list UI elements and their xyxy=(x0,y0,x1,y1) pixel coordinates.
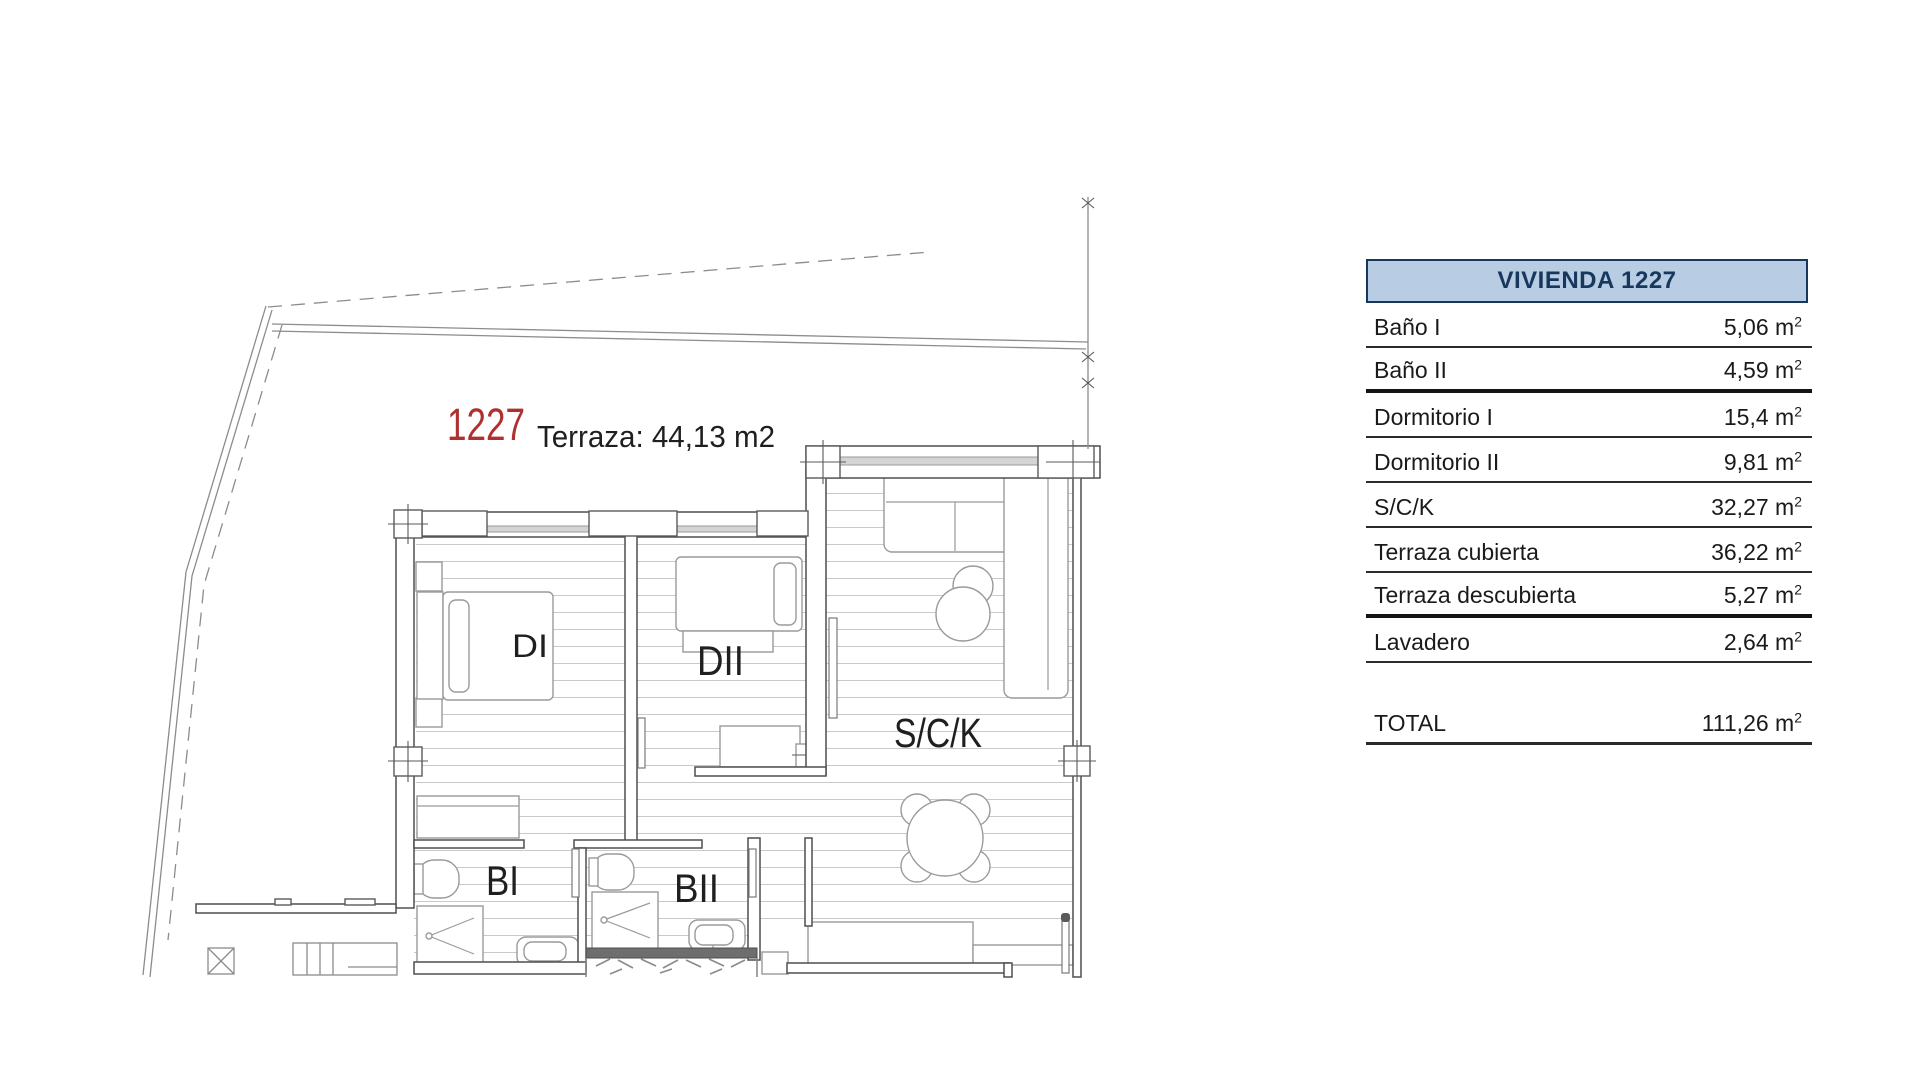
room-area-value: 5,27 m2 xyxy=(1724,582,1802,609)
area-table-row: Baño II4,59 m2 xyxy=(1366,348,1812,393)
table-rows: Baño I5,06 m2Baño II4,59 m2Dormitorio I1… xyxy=(1366,303,1812,663)
square-sup: 2 xyxy=(1794,448,1802,464)
square-sup: 2 xyxy=(1794,403,1802,419)
room-name: Dormitorio I xyxy=(1374,404,1493,431)
area-table-row: Dormitorio II9,81 m2 xyxy=(1366,438,1812,483)
square-sup: 2 xyxy=(1794,356,1802,372)
room-label-di: DI xyxy=(512,628,548,664)
room-name: Terraza descubierta xyxy=(1374,582,1576,609)
square-sup: 2 xyxy=(1794,493,1802,509)
total-value: 111,26 m2 xyxy=(1702,710,1802,737)
room-name: Baño II xyxy=(1374,357,1447,384)
table-title: VIVIENDA 1227 xyxy=(1497,267,1676,295)
room-area-value: 4,59 m2 xyxy=(1724,357,1802,384)
room-name: S/C/K xyxy=(1374,494,1434,521)
area-table-row: Dormitorio I15,4 m2 xyxy=(1366,393,1812,438)
room-area-value: 32,27 m2 xyxy=(1711,494,1802,521)
square-sup: 2 xyxy=(1794,581,1802,597)
room-label-dii: DII xyxy=(697,637,744,684)
area-table-row: Terraza cubierta36,22 m2 xyxy=(1366,528,1812,573)
unit-number-label: 1227 xyxy=(447,399,525,450)
room-label-bi: BI xyxy=(486,857,519,904)
area-table-row: S/C/K32,27 m2 xyxy=(1366,483,1812,528)
table-header: VIVIENDA 1227 xyxy=(1366,259,1808,303)
room-label-bii: BII xyxy=(674,867,719,911)
room-area-value: 15,4 m2 xyxy=(1724,404,1802,431)
room-area-value: 36,22 m2 xyxy=(1711,539,1802,566)
dining-table-set xyxy=(901,794,990,882)
area-table-row: Terraza descubierta5,27 m2 xyxy=(1366,573,1812,618)
area-table: VIVIENDA 1227 Baño I5,06 m2Baño II4,59 m… xyxy=(1366,259,1812,745)
table-total-row: TOTAL 111,26 m2 xyxy=(1366,699,1812,745)
outdoor-steps xyxy=(208,943,397,975)
total-label: TOTAL xyxy=(1374,710,1446,737)
room-name: Baño I xyxy=(1374,314,1441,341)
area-table-row: Baño I5,06 m2 xyxy=(1366,303,1812,348)
room-area-value: 9,81 m2 xyxy=(1724,449,1802,476)
square-sup: 2 xyxy=(1794,538,1802,554)
square-sup: 2 xyxy=(1794,709,1802,725)
room-name: Terraza cubierta xyxy=(1374,539,1539,566)
area-table-row: Lavadero2,64 m2 xyxy=(1366,618,1812,663)
room-label-sck: S/C/K xyxy=(894,710,982,756)
square-sup: 2 xyxy=(1794,628,1802,644)
room-area-value: 5,06 m2 xyxy=(1724,314,1802,341)
square-sup: 2 xyxy=(1794,313,1802,329)
room-name: Dormitorio II xyxy=(1374,449,1499,476)
room-area-value: 2,64 m2 xyxy=(1724,629,1802,656)
lavadero-hatch xyxy=(586,958,757,977)
terrace-area-label: Terraza: 44,13 m2 xyxy=(537,419,775,454)
floorplan-page: 1227 Terraza: 44,13 m2 DI DII S/C/K BI B… xyxy=(0,0,1920,1080)
room-name: Lavadero xyxy=(1374,629,1470,656)
